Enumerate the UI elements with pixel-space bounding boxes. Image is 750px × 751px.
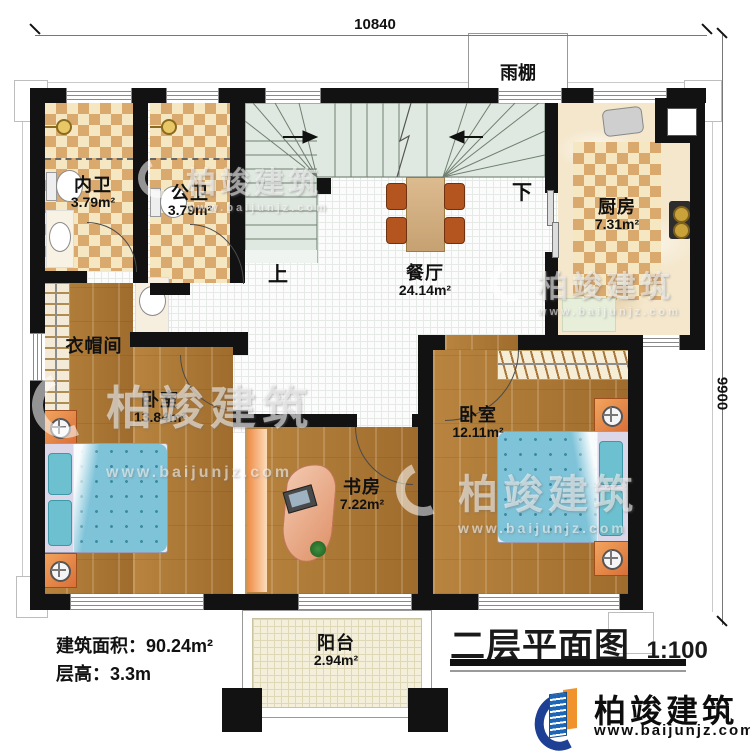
balcony-pillar-right bbox=[408, 688, 448, 732]
balcony-pillar-left bbox=[222, 688, 262, 732]
stair-railing-post bbox=[317, 178, 331, 194]
wall-study-top bbox=[233, 414, 357, 427]
wall-study-bedroom-divider bbox=[418, 335, 433, 594]
kitchen-sink-icon bbox=[602, 106, 645, 138]
canopy-outline: 雨棚 bbox=[468, 33, 568, 90]
room-label-cloakroom: 衣帽间 bbox=[52, 337, 136, 356]
room-area: 13.84m² bbox=[115, 410, 205, 425]
wall-kitchen-left-lower bbox=[545, 252, 558, 335]
logo-building-blue bbox=[549, 692, 567, 739]
room-name: 卧室 bbox=[433, 406, 523, 425]
lamp-icon bbox=[50, 561, 71, 582]
window bbox=[70, 594, 204, 610]
canopy-label: 雨棚 bbox=[469, 59, 567, 85]
nightstand bbox=[42, 553, 77, 588]
lamp-icon bbox=[50, 418, 71, 439]
bed bbox=[497, 431, 629, 543]
shower-partition-line bbox=[45, 158, 133, 160]
burner-icon bbox=[673, 222, 690, 239]
nightstand bbox=[594, 541, 629, 576]
room-label-balcony: 阳台 2.94m² bbox=[294, 634, 378, 669]
burner-icon bbox=[673, 206, 690, 223]
title-underline-thin bbox=[450, 670, 686, 672]
bed-blanket bbox=[74, 444, 167, 552]
dimension-tick bbox=[701, 23, 712, 34]
floor-plan-canvas: 雨棚 bbox=[0, 0, 750, 751]
lamp-icon bbox=[602, 406, 623, 427]
dimension-height-label: 9900 bbox=[714, 364, 731, 424]
window bbox=[265, 88, 321, 103]
door-opening bbox=[445, 335, 518, 350]
window bbox=[638, 335, 680, 350]
window bbox=[30, 333, 45, 381]
room-name: 卧室 bbox=[115, 391, 205, 410]
brand-logo-icon bbox=[533, 683, 589, 743]
chair bbox=[386, 183, 407, 210]
room-label-bedroom-right: 卧室 12.11m² bbox=[433, 406, 523, 441]
pillow bbox=[48, 500, 72, 546]
room-area: 3.79m² bbox=[148, 203, 232, 218]
room-label-bedroom-left: 卧室 13.84m² bbox=[115, 391, 205, 426]
shower-head-icon bbox=[56, 119, 72, 135]
washbasin-icon bbox=[49, 222, 71, 252]
bed-blanket bbox=[498, 432, 597, 542]
room-name: 内卫 bbox=[51, 176, 135, 195]
bed bbox=[42, 443, 168, 553]
room-area: 3.79m² bbox=[51, 195, 135, 210]
monitor-screen bbox=[288, 490, 310, 508]
room-area: 7.22m² bbox=[317, 497, 407, 512]
room-label-dining: 餐厅 24.14m² bbox=[380, 264, 470, 299]
stairs-up-label: 上 bbox=[268, 258, 288, 287]
room-name: 阳台 bbox=[294, 634, 378, 653]
room-name: 书房 bbox=[317, 478, 407, 497]
wall-right-lower bbox=[628, 335, 643, 610]
title-underline bbox=[450, 659, 686, 666]
room-label-bath-inner: 内卫 3.79m² bbox=[51, 176, 135, 211]
lamp-icon bbox=[602, 549, 623, 570]
kitchen-mat bbox=[562, 298, 616, 332]
room-name: 厨房 bbox=[575, 198, 659, 217]
room-label-kitchen: 厨房 7.31m² bbox=[575, 198, 659, 233]
eave-line-right bbox=[712, 92, 713, 612]
room-area: 24.14m² bbox=[380, 283, 470, 298]
wall-bedroom-left-top bbox=[130, 332, 233, 347]
shower-partition-line bbox=[150, 158, 230, 160]
window bbox=[478, 594, 620, 610]
window bbox=[498, 88, 562, 103]
pillow bbox=[599, 490, 623, 536]
wall-bath-divider bbox=[133, 103, 148, 283]
chair bbox=[386, 217, 407, 244]
chair bbox=[444, 217, 465, 244]
nightstand bbox=[594, 398, 629, 433]
pillow bbox=[599, 441, 623, 485]
sliding-door-panel bbox=[552, 222, 559, 258]
room-label-study: 书房 7.22m² bbox=[317, 478, 407, 513]
room-name: 衣帽间 bbox=[52, 337, 136, 356]
build-area-text: 建筑面积：90.24m² bbox=[56, 632, 213, 658]
stove-icon bbox=[669, 201, 691, 239]
brand-url: www.baijunjz.com bbox=[594, 722, 750, 739]
dimension-line-top bbox=[35, 35, 707, 36]
dimension-line-right bbox=[722, 35, 723, 625]
chair bbox=[444, 183, 465, 210]
plant-icon bbox=[310, 541, 326, 557]
room-label-bath-public: 公卫 3.79m² bbox=[148, 184, 232, 219]
balcony-door bbox=[298, 594, 412, 610]
sliding-door-panel bbox=[547, 190, 554, 226]
shower-head-icon bbox=[161, 119, 177, 135]
room-name: 餐厅 bbox=[380, 264, 470, 283]
room-area: 2.94m² bbox=[294, 653, 378, 668]
room-area: 7.31m² bbox=[575, 217, 659, 232]
eave-line-left bbox=[22, 88, 23, 610]
window bbox=[66, 88, 132, 103]
eave-line-top bbox=[30, 82, 706, 83]
study-cabinet bbox=[247, 429, 267, 592]
wall-hall-vertical bbox=[233, 332, 248, 355]
pillow bbox=[48, 453, 72, 495]
dimension-width-label: 10840 bbox=[330, 16, 420, 33]
nightstand bbox=[42, 410, 77, 445]
room-name: 公卫 bbox=[148, 184, 232, 203]
wall-kitchen-left bbox=[545, 103, 558, 193]
dimension-tick bbox=[29, 23, 40, 34]
flue-duct bbox=[667, 108, 697, 136]
wall-bath-inner-bottom bbox=[45, 271, 87, 283]
window bbox=[166, 88, 219, 103]
stairs-down-label: 下 bbox=[512, 176, 532, 205]
floor-height-text: 层高：3.3m bbox=[56, 660, 151, 686]
room-area: 12.11m² bbox=[433, 425, 523, 440]
wall-bath-public-bottom bbox=[150, 283, 190, 295]
dining-table bbox=[406, 177, 445, 252]
